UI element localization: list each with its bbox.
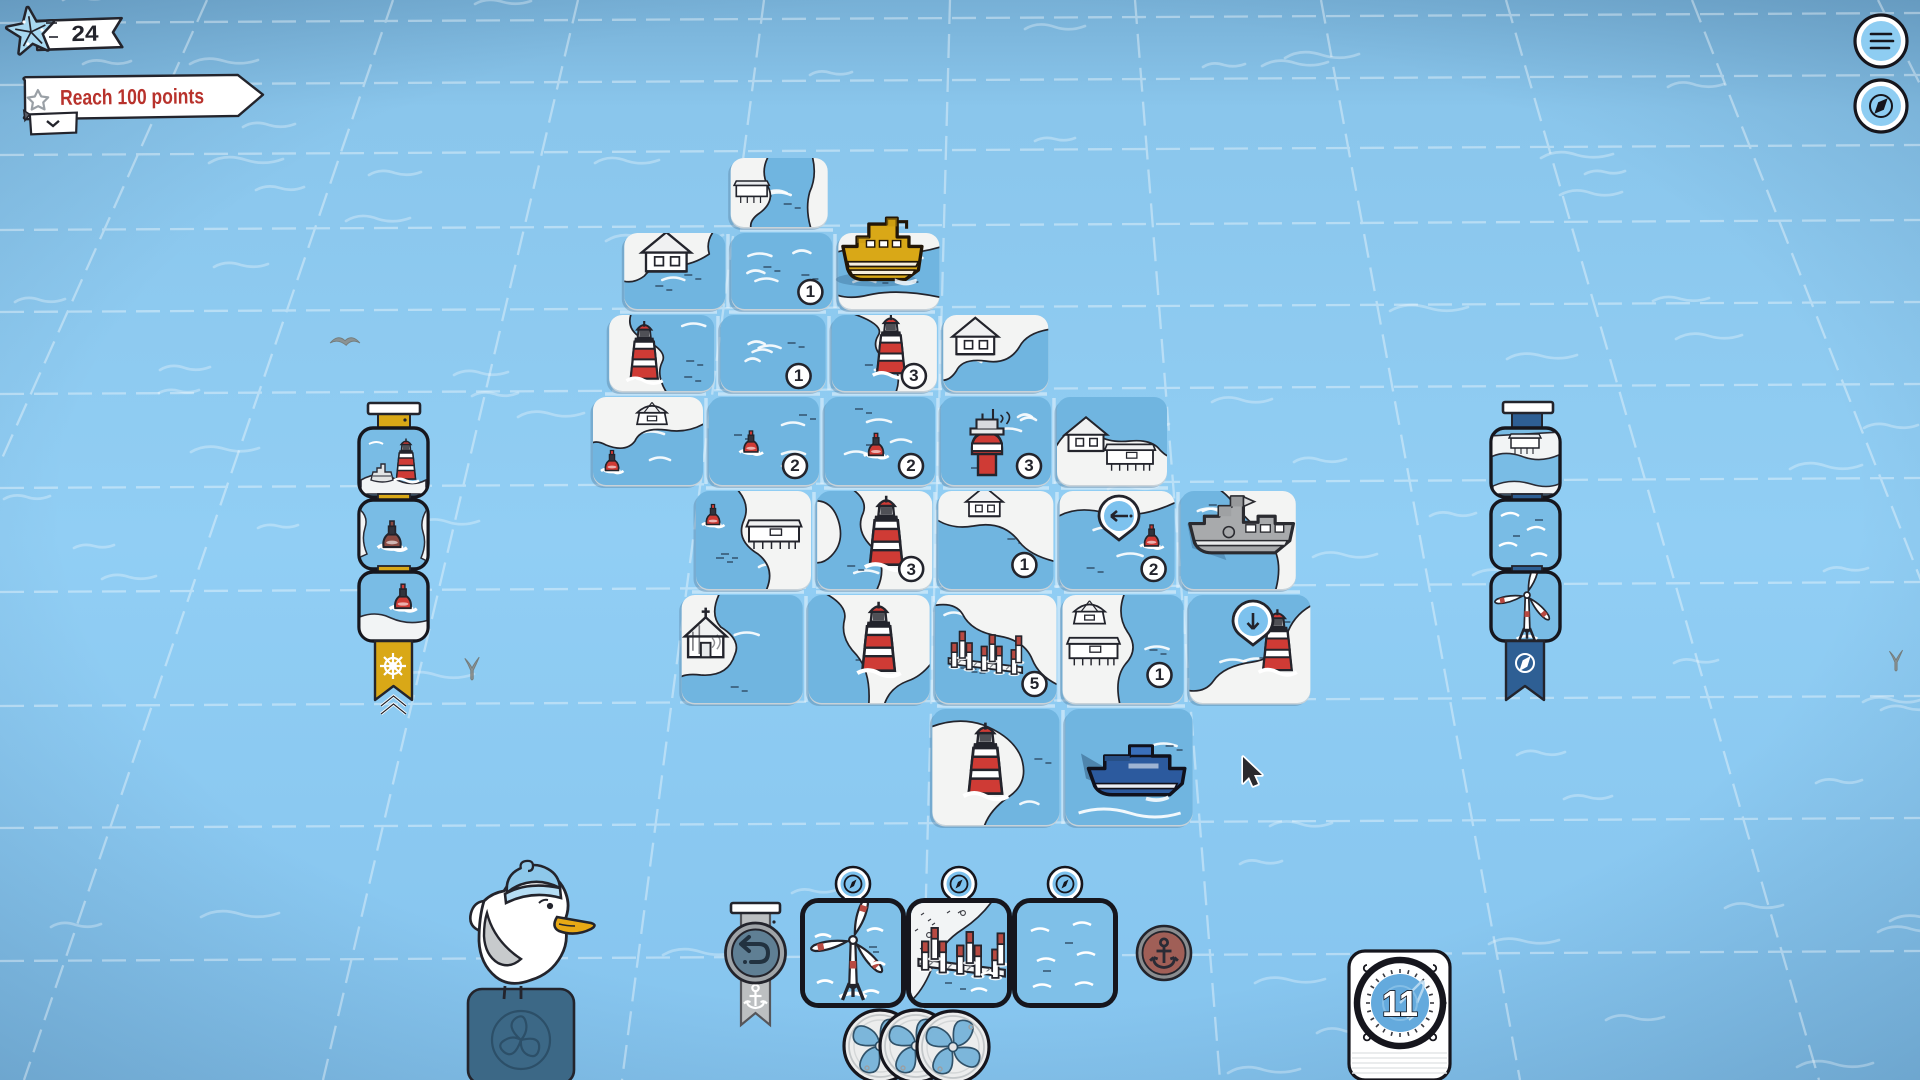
svg-text:Reach 100 points: Reach 100 points (60, 84, 204, 110)
svg-text:3: 3 (906, 560, 915, 579)
svg-text:1: 1 (1155, 665, 1164, 684)
svg-text:2: 2 (906, 456, 915, 475)
svg-text:3: 3 (1024, 456, 1033, 475)
svg-text:5: 5 (1030, 674, 1039, 693)
svg-text:1: 1 (794, 366, 803, 385)
svg-text:3: 3 (909, 366, 918, 385)
svg-text:2: 2 (790, 456, 799, 475)
svg-text:1: 1 (806, 282, 815, 301)
svg-text:24: 24 (71, 21, 99, 47)
svg-text:11: 11 (1382, 983, 1418, 1024)
svg-text:2: 2 (1149, 560, 1158, 579)
svg-text:1: 1 (1020, 555, 1029, 574)
